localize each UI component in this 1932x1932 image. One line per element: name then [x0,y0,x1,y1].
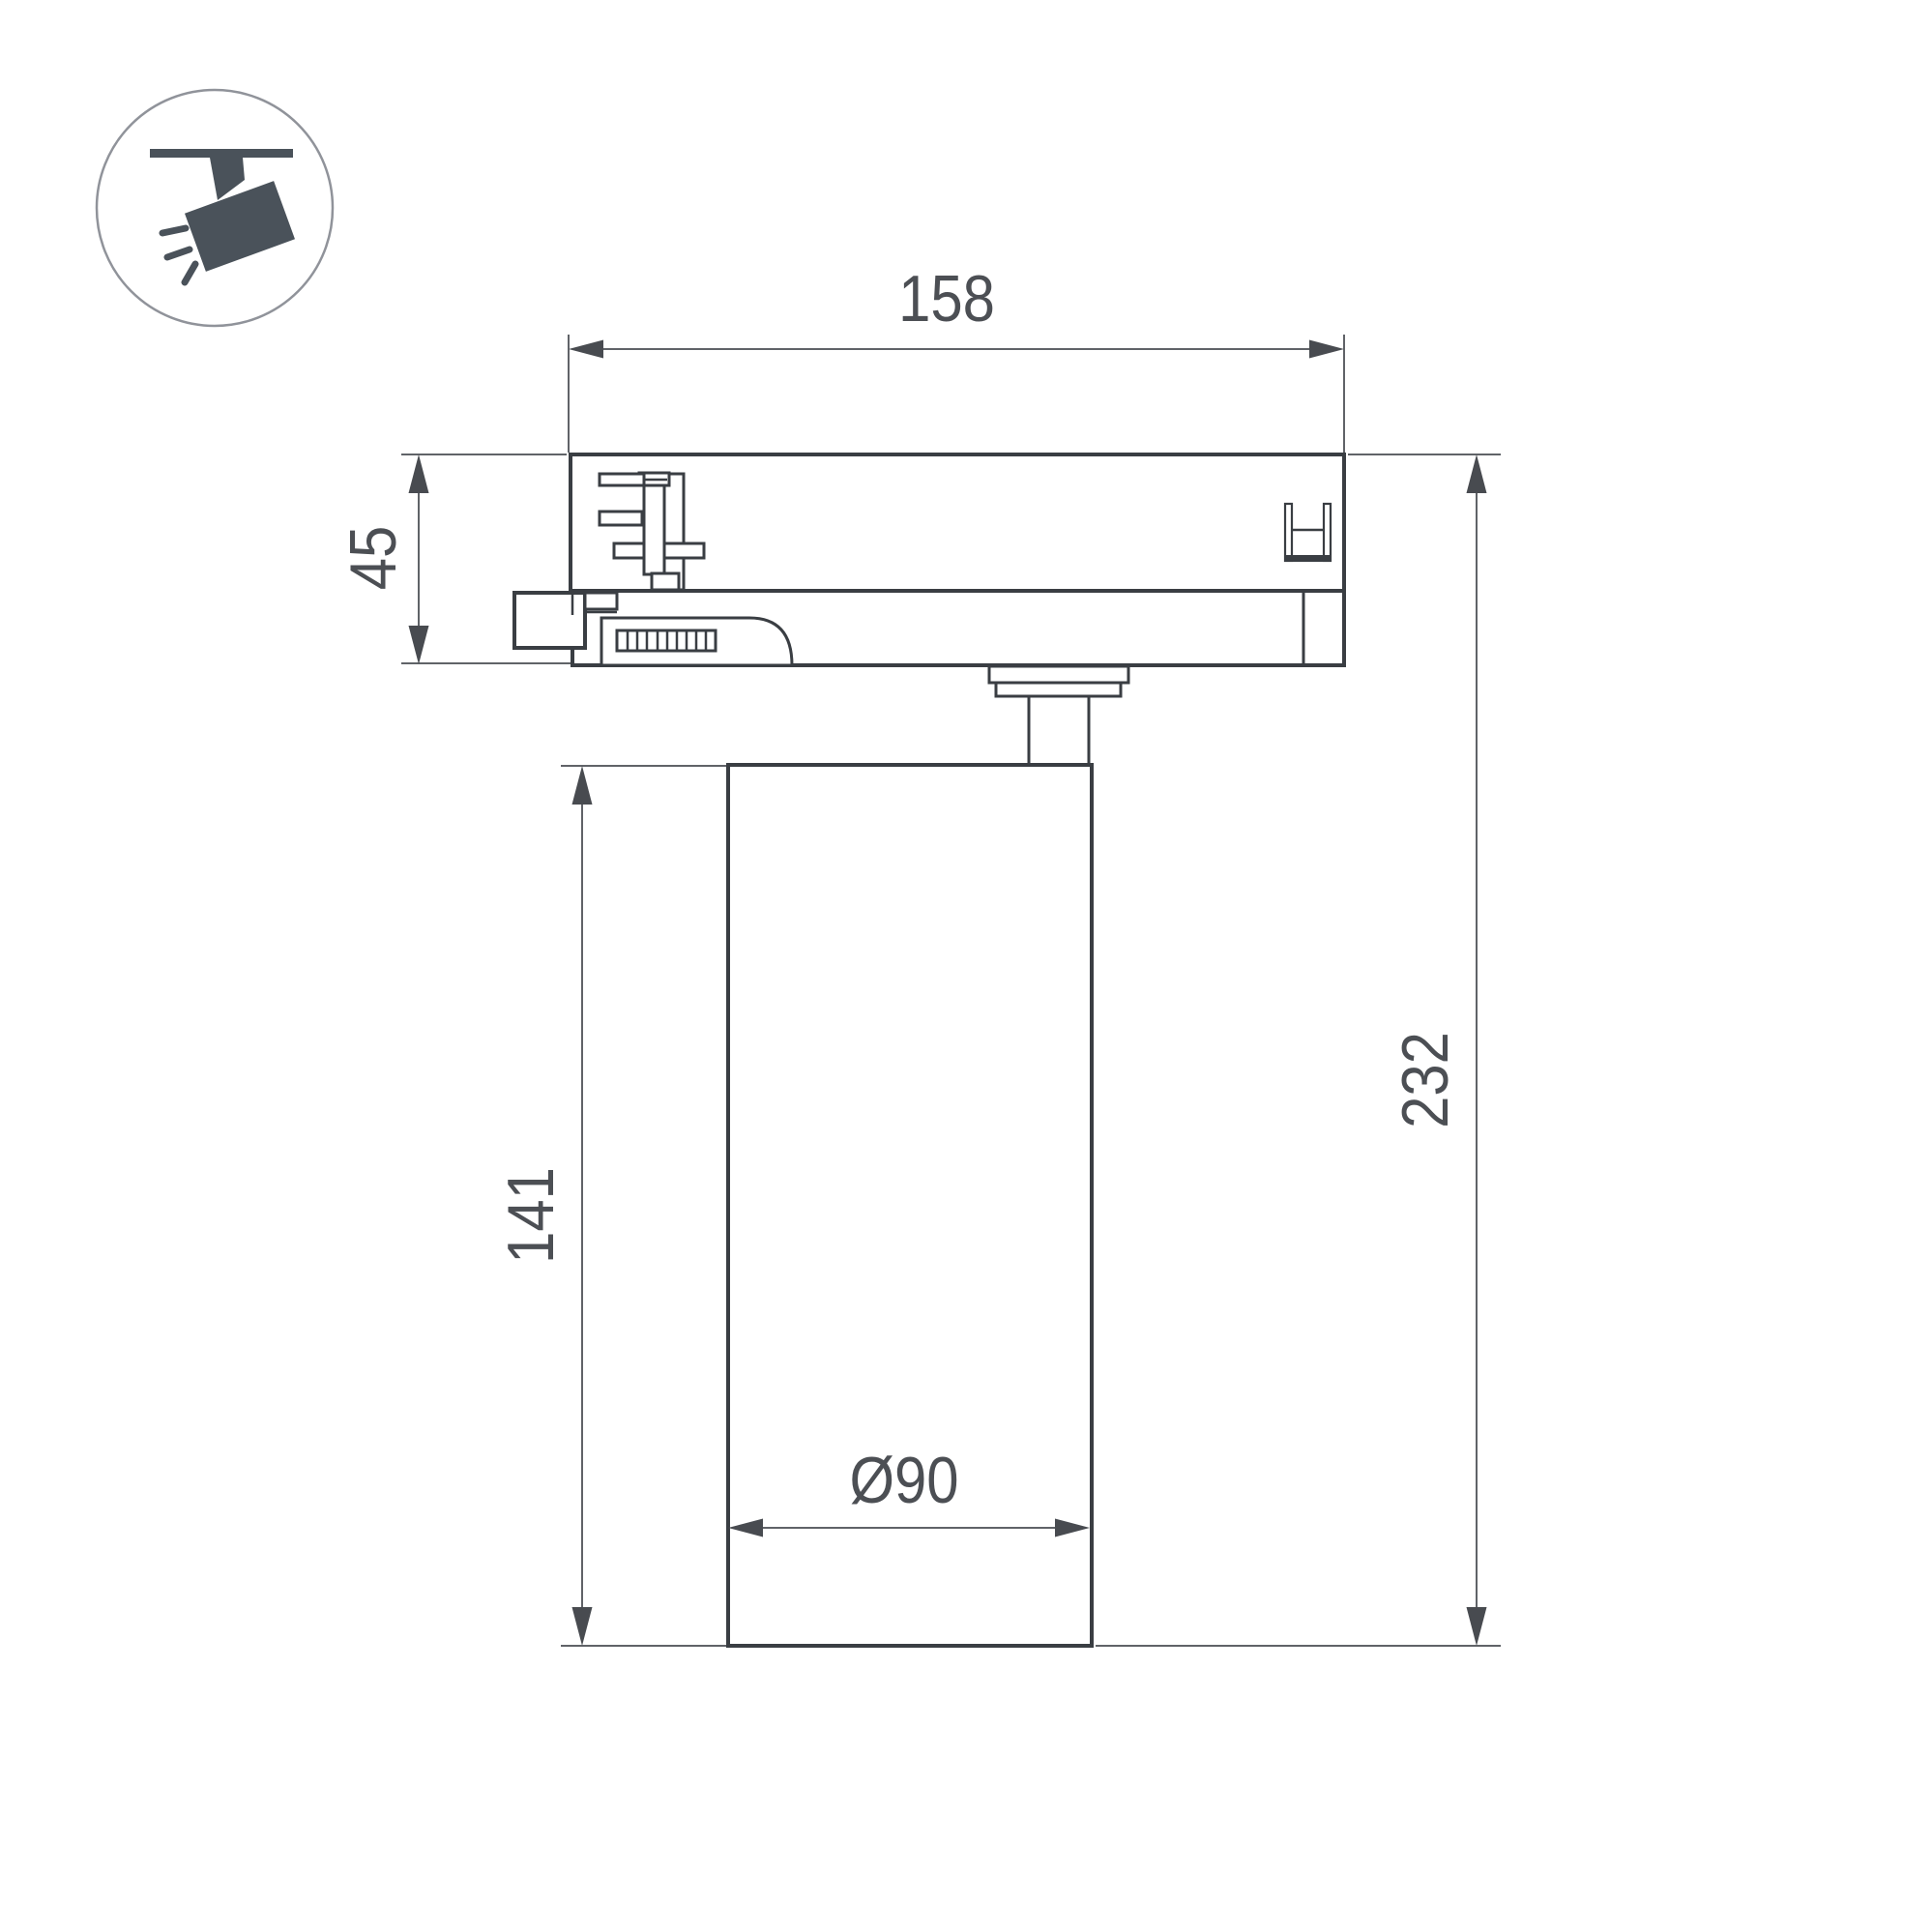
adapter-upper-box [571,454,1344,591]
label-adapter-width: 158 [898,266,995,332]
stem-flange-upper [989,666,1128,683]
stem-neck [1029,696,1089,766]
clip-left-wall [1285,504,1292,561]
lock-step [585,593,617,609]
label-adapter-height: 45 [340,526,406,591]
arrow-232-bottom [1467,1607,1487,1646]
arrow-158-left [569,340,603,359]
arrow-158-right [1309,340,1344,359]
ext-lines-141 [561,766,726,1646]
contact-pin [644,483,664,574]
arrow-141-top [572,766,593,805]
arrow-45-top [409,454,429,493]
track-spotlight-icon [97,90,333,326]
track-adapter-outline [514,454,1344,665]
icon-track-bar [150,149,293,158]
contact-prong-upper [600,474,644,485]
arrow-141-bottom [572,1607,593,1646]
arrow-45-bottom [409,626,429,664]
ext-lines-158 [569,335,1344,453]
clip-right-wall [1324,504,1331,561]
label-body-diameter: Ø90 [849,1448,958,1513]
dimension-141 [561,766,726,1646]
stem-flange-lower [996,683,1121,696]
arrow-232-top [1467,454,1487,493]
technical-drawing-page: 158 45 141 232 Ø90 [0,0,1932,1932]
label-total-height: 232 [1392,1032,1458,1128]
lock-lever-block [514,593,585,648]
contact-pin-foot [652,573,679,590]
label-body-height: 141 [498,1167,564,1264]
clip-base [1285,555,1331,562]
contact-prong-middle [600,512,642,525]
dimension-158 [569,335,1344,453]
